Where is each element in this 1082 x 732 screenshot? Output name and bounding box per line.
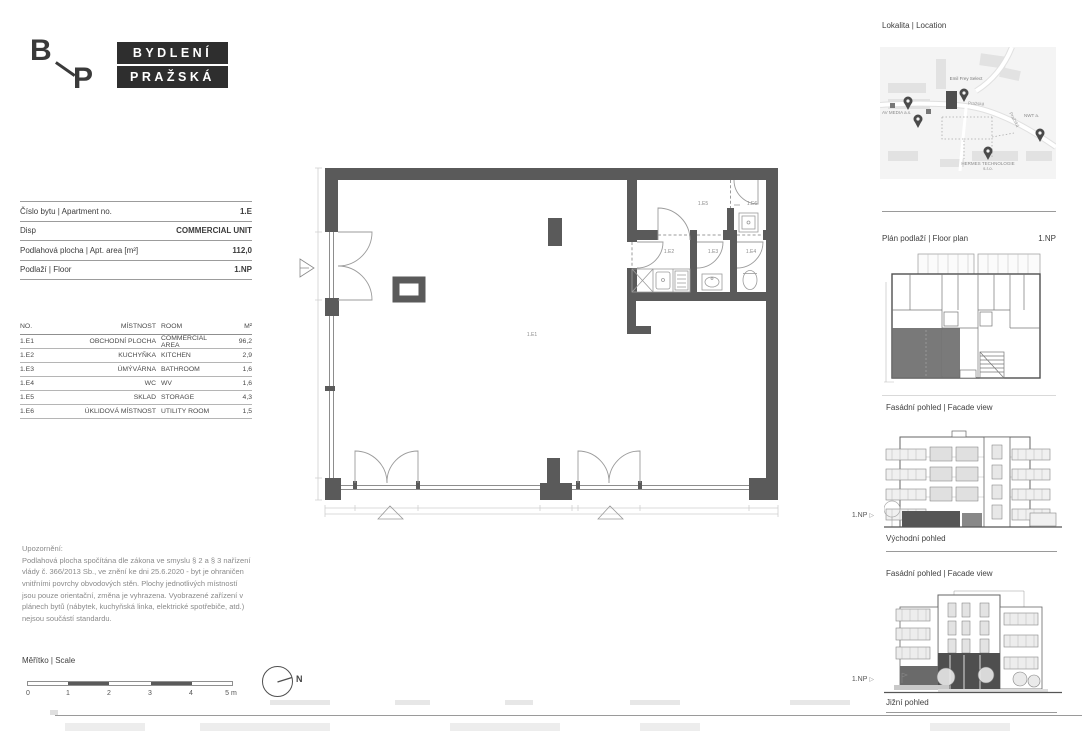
col-room-en: ROOM bbox=[156, 323, 222, 330]
faint-text-fragment bbox=[65, 723, 145, 731]
location-map: Emil Frey Select AV MEDIA a.s. NWT a. HE… bbox=[880, 47, 1056, 179]
compass-needle-icon bbox=[262, 666, 294, 698]
apartment-info-table: Číslo bytu | Apartment no. 1.E Disp COMM… bbox=[20, 201, 252, 280]
faint-text-fragment bbox=[640, 723, 700, 731]
faint-text-fragment bbox=[505, 700, 533, 705]
info-value: 112,0 bbox=[232, 246, 252, 255]
table-row: 1.E5 SKLAD STORAGE 4,3 bbox=[20, 391, 252, 405]
scale-tick: 3 bbox=[148, 690, 152, 697]
table-row: 1.E4 WC WV 1,6 bbox=[20, 377, 252, 391]
info-label: Disp bbox=[20, 226, 36, 235]
pointer-triangle-icon: ▷ bbox=[869, 512, 874, 519]
facade-south-title: Fasádní pohled | Facade view bbox=[886, 569, 993, 578]
col-area: M² bbox=[222, 323, 252, 330]
facade-east-floor-marker: 1.NP ▷ bbox=[840, 512, 874, 519]
floorplan-floor-label: 1.NP bbox=[1006, 234, 1056, 243]
faint-text-fragment bbox=[395, 700, 430, 705]
facade-east-title: Fasádní pohled | Facade view bbox=[886, 403, 993, 412]
disclaimer: Upozornění: Podlahová plocha spočítána d… bbox=[22, 543, 252, 624]
map-label-avmedia: AV MEDIA a.s. bbox=[882, 110, 911, 115]
scale-tick: 2 bbox=[107, 690, 111, 697]
room-label-e6: 1.E6 bbox=[741, 201, 763, 207]
logo-wordmark-line1: BYDLENÍ bbox=[117, 42, 228, 64]
pointer-triangle-icon: ▷ bbox=[869, 676, 874, 683]
scale-segment bbox=[151, 682, 192, 685]
room-label-e1: 1.E1 bbox=[521, 332, 543, 338]
map-label-nwt: NWT a. bbox=[1024, 113, 1039, 118]
faint-text-fragment bbox=[790, 700, 850, 705]
map-poi-icon bbox=[890, 103, 895, 108]
info-row-area: Podlahová plocha | Apt. area [m²] 112,0 bbox=[20, 241, 252, 261]
logo-letter-b: B bbox=[30, 36, 52, 66]
room-label-e2: 1.E2 bbox=[658, 249, 680, 255]
brand-logo: B P BYDLENÍ PRAŽSKÁ bbox=[0, 0, 260, 100]
logo-letter-p: P bbox=[73, 64, 93, 94]
disclaimer-body: Podlahová plocha spočítána dle zákona ve… bbox=[22, 555, 252, 625]
info-value: 1.NP bbox=[234, 265, 252, 274]
logo-wordmark-line2: PRAŽSKÁ bbox=[117, 66, 228, 88]
room-label-e3: 1.E3 bbox=[702, 249, 724, 255]
scale-tick: 5 m bbox=[225, 690, 237, 697]
plan-walls bbox=[325, 168, 778, 500]
caption-underline bbox=[886, 712, 1057, 713]
location-section-title: Lokalita | Location bbox=[882, 21, 946, 30]
faint-text-fragment bbox=[450, 723, 560, 731]
map-label-hermes: HERMES TECHNOLOGIE s.r.o. bbox=[956, 161, 1020, 172]
rooms-table-header: NO. MÍSTNOST ROOM M² bbox=[20, 319, 252, 335]
info-row-disposition: Disp COMMERCIAL UNIT bbox=[20, 222, 252, 242]
map-label-street1: Pražská bbox=[968, 101, 985, 107]
entrance-arrow-icon bbox=[300, 259, 314, 277]
facade-south-floor-marker: 1.NP ▷ bbox=[840, 676, 874, 683]
faint-text-fragment bbox=[200, 723, 330, 731]
main-floor-plan: 1.E1 1.E2 1.E3 1.E4 1.E5 1.E6 bbox=[325, 168, 778, 522]
plan-dimension-lines bbox=[315, 168, 778, 517]
facade-south-drawing bbox=[884, 589, 1062, 701]
caption-underline bbox=[886, 551, 1057, 552]
table-row: 1.E1 OBCHODNÍ PLOCHA COMMERCIAL AREA 96,… bbox=[20, 335, 252, 349]
col-room-cz: MÍSTNOST bbox=[50, 323, 156, 330]
sidebar-divider bbox=[882, 395, 1056, 396]
map-label-emil: Emil Frey Select bbox=[938, 76, 994, 81]
info-row-apartment-no: Číslo bytu | Apartment no. 1.E bbox=[20, 202, 252, 222]
plan-shaft bbox=[396, 280, 422, 299]
highlighted-unit-part bbox=[942, 330, 960, 376]
info-label: Číslo bytu | Apartment no. bbox=[20, 207, 112, 216]
table-row: 1.E2 KUCHYŇKA KITCHEN 2,9 bbox=[20, 349, 252, 363]
room-label-e4: 1.E4 bbox=[740, 249, 762, 255]
faint-text-fragment bbox=[930, 723, 1010, 731]
sidebar-divider bbox=[882, 211, 1056, 212]
scale-tick: 1 bbox=[66, 690, 70, 697]
faint-text-fragment bbox=[270, 700, 330, 705]
floor-plan-drawing bbox=[325, 168, 778, 522]
map-poi-icon bbox=[926, 109, 931, 114]
faint-text-fragment bbox=[630, 700, 680, 705]
info-label: Podlahová plocha | Apt. area [m²] bbox=[20, 246, 138, 255]
facade-south-caption: Jižní pohled bbox=[886, 698, 929, 707]
scale-bar bbox=[27, 681, 233, 686]
table-row: 1.E6 ÚKLIDOVÁ MÍSTNOST UTILITY ROOM 1,5 bbox=[20, 405, 252, 419]
info-value: COMMERCIAL UNIT bbox=[176, 226, 252, 235]
disclaimer-title: Upozornění: bbox=[22, 543, 252, 555]
storefront-dark-band bbox=[902, 511, 960, 527]
info-value: 1.E bbox=[240, 207, 252, 216]
scale-segment bbox=[68, 682, 109, 685]
table-row: 1.E3 ÚMÝVÁRNA BATHROOM 1,6 bbox=[20, 363, 252, 377]
map-highlight-building bbox=[946, 91, 957, 109]
facade-east-caption: Východní pohled bbox=[886, 534, 946, 543]
floorplan-thumbnail bbox=[884, 252, 1052, 392]
info-row-floor: Podlaží | Floor 1.NP bbox=[20, 261, 252, 281]
north-label: N bbox=[296, 674, 303, 684]
north-indicator: N bbox=[262, 666, 310, 698]
floorplan-section-title: Plán podlaží | Floor plan bbox=[882, 234, 968, 243]
scale-tick: 0 bbox=[26, 690, 30, 697]
scale-tick: 4 bbox=[189, 690, 193, 697]
info-label: Podlaží | Floor bbox=[20, 265, 71, 274]
scale-title: Měřítko | Scale bbox=[22, 656, 75, 665]
col-no: NO. bbox=[20, 323, 50, 330]
floorplan-sheet: { "logo": { "b": "B", "p": "P", "line1":… bbox=[0, 0, 1082, 732]
rooms-table: NO. MÍSTNOST ROOM M² 1.E1 OBCHODNÍ PLOCH… bbox=[20, 319, 252, 419]
footer-divider bbox=[55, 715, 1082, 716]
facade-east-drawing bbox=[884, 421, 1062, 539]
room-label-e5: 1.E5 bbox=[692, 201, 714, 207]
plan-fixtures bbox=[300, 205, 758, 519]
